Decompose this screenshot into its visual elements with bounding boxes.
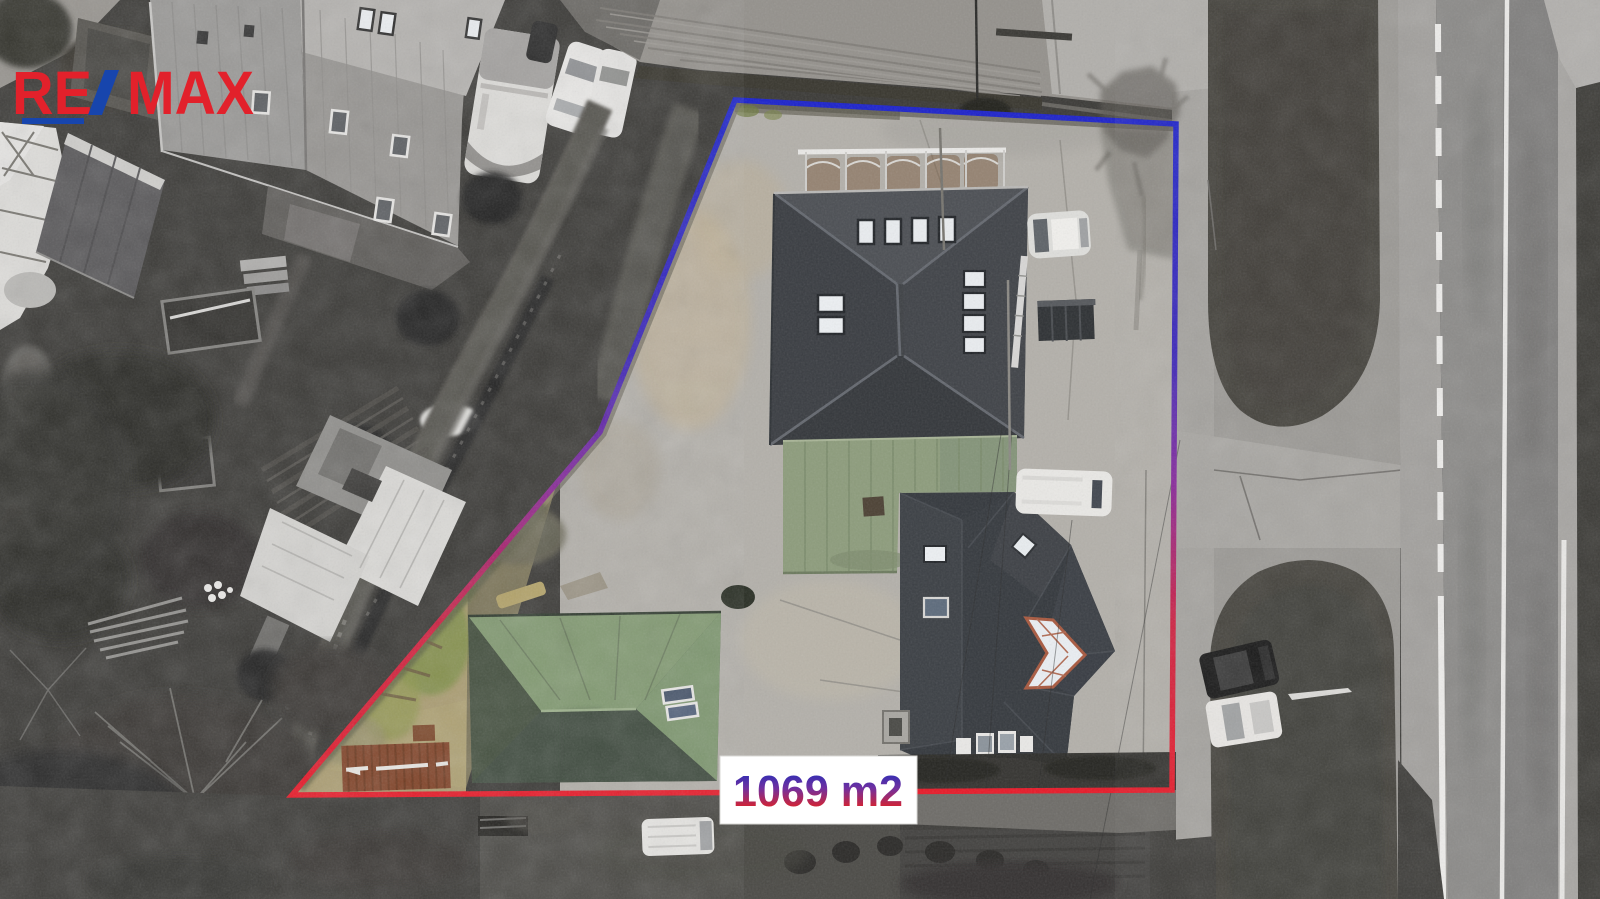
svg-text:1069 m2: 1069 m2 (733, 767, 903, 816)
svg-text:RE: RE (12, 59, 92, 127)
svg-text:MAX: MAX (127, 59, 254, 127)
